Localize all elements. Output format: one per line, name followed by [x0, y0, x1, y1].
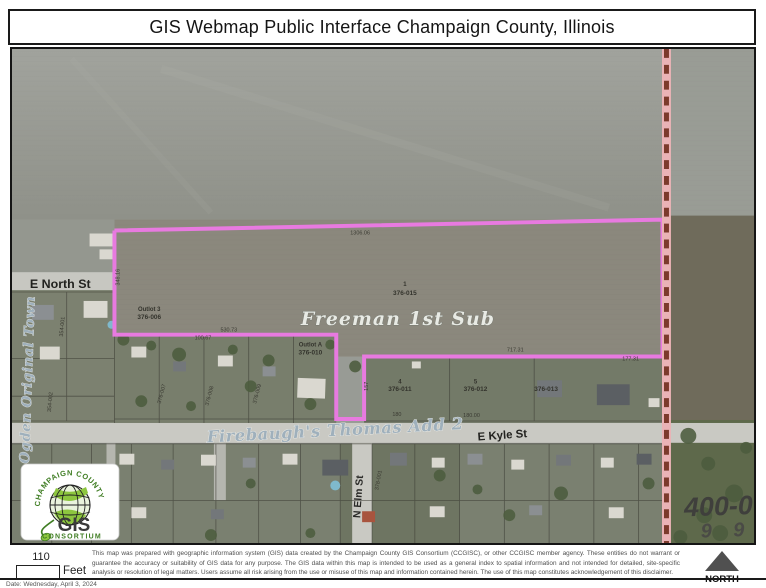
- logo-consortium-text: CONSORTIUM: [42, 534, 102, 541]
- svg-text:177.31: 177.31: [622, 356, 639, 362]
- svg-text:376-013: 376-013: [534, 386, 558, 393]
- street-label-north: E North St: [30, 277, 91, 291]
- svg-text:376-015: 376-015: [393, 290, 417, 297]
- svg-text:1306.06: 1306.06: [350, 231, 370, 237]
- svg-text:717.31: 717.31: [507, 348, 524, 354]
- svg-text:100.67: 100.67: [195, 336, 212, 342]
- svg-text:376-011: 376-011: [388, 386, 412, 393]
- svg-text:157: 157: [364, 382, 370, 391]
- subdivision-label-freeman: Freeman 1st Sub: [300, 308, 495, 330]
- map-title-bar: GIS Webmap Public Interface Champaign Co…: [8, 9, 756, 45]
- svg-text:180.00: 180.00: [463, 413, 480, 419]
- page: GIS Webmap Public Interface Champaign Co…: [0, 0, 766, 588]
- svg-text:180: 180: [392, 412, 401, 418]
- svg-text:9 9: 9 9: [700, 519, 752, 543]
- svg-text:Outlot 3: Outlot 3: [138, 307, 161, 313]
- north-arrow: NORTH: [698, 548, 746, 586]
- footer-divider: [0, 578, 766, 580]
- scale-value: 110: [20, 551, 62, 563]
- terrain-base: [12, 49, 754, 543]
- svg-text:530.73: 530.73: [220, 328, 237, 334]
- north-arrow-icon: [705, 551, 739, 571]
- svg-text:376-010: 376-010: [299, 350, 323, 357]
- svg-text:376-006: 376-006: [137, 314, 161, 321]
- svg-text:Outlot A: Outlot A: [299, 343, 323, 349]
- scale-input[interactable]: [16, 565, 60, 579]
- date-line: Date: Wednesday, April 3, 2024: [6, 581, 97, 588]
- disclaimer-text: This map was prepared with geographic in…: [92, 549, 680, 578]
- gis-consortium-logo: CHAMPAIGN COUNTY GIS CONSORTIUM: [20, 463, 120, 541]
- page-title: GIS Webmap Public Interface Champaign Co…: [149, 17, 614, 38]
- map-canvas[interactable]: Freeman 1st Sub Firebaugh's Thomas Add 2…: [10, 47, 756, 545]
- scale-unit-label: Feet: [63, 565, 86, 577]
- svg-text:348.16: 348.16: [115, 269, 121, 286]
- aerial-map: Freeman 1st Sub Firebaugh's Thomas Add 2…: [12, 49, 754, 543]
- svg-text:376-012: 376-012: [464, 386, 488, 393]
- svg-text:400-0: 400-0: [683, 490, 754, 522]
